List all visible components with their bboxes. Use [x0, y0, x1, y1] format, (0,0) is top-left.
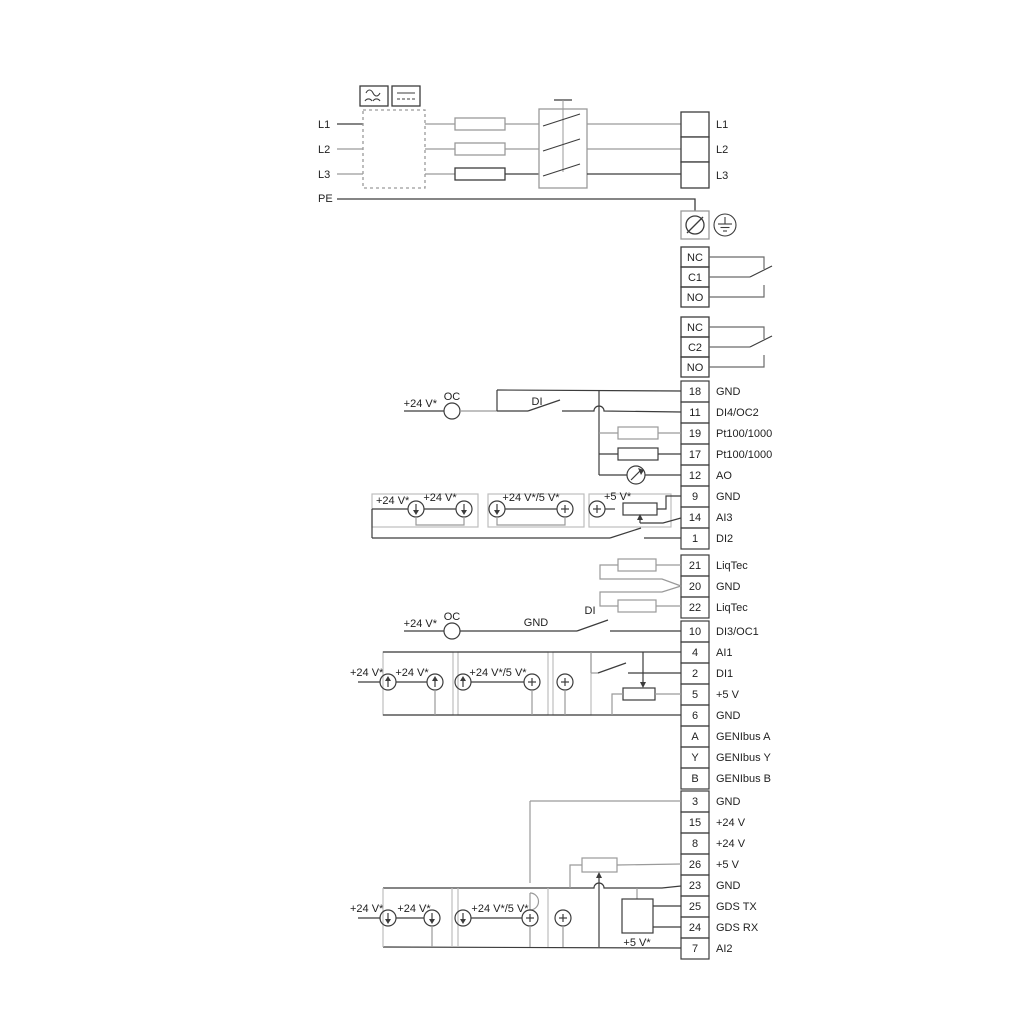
terminal-label: GENIbus B — [716, 773, 771, 785]
terminal-label: AI2 — [716, 943, 733, 955]
terminal-num: 5 — [692, 689, 698, 701]
mains-terminal-block — [681, 112, 709, 188]
label-plus5v: +5 V* — [604, 491, 632, 503]
terminal-num: 8 — [692, 838, 698, 850]
terminal-label: LiqTec — [716, 602, 748, 614]
terminal-label: GDS RX — [716, 922, 759, 934]
input-label-l2: L2 — [318, 144, 330, 156]
label-oc: OC — [444, 391, 461, 403]
input-label-l1: L1 — [318, 119, 330, 131]
terminal-num: 26 — [689, 859, 701, 871]
terminal-num: 17 — [689, 449, 701, 461]
terminal-label: DI1 — [716, 668, 733, 680]
relay1-c1: C1 — [688, 272, 702, 284]
output-label-l1: L1 — [716, 119, 728, 131]
terminal-num: 20 — [689, 581, 701, 593]
terminal-num: 12 — [689, 470, 701, 482]
input-label-l3: L3 — [318, 169, 330, 181]
terminal-label: GDS TX — [716, 901, 757, 913]
label-plus24v: +24 V* — [404, 398, 438, 410]
terminal-num: 3 — [692, 796, 698, 808]
terminal-num: 19 — [689, 428, 701, 440]
input-label-pe: PE — [318, 193, 333, 205]
label-plus24v: +24 V* — [350, 667, 384, 679]
terminal-label: GND — [716, 386, 741, 398]
terminal-label: AO — [716, 470, 732, 482]
relay2-no: NO — [687, 362, 704, 374]
label-oc: OC — [444, 611, 461, 623]
terminal-label: GENIbus A — [716, 731, 771, 743]
label-plus24v-5v: +24 V*/5 V* — [469, 667, 527, 679]
terminal-num: A — [691, 731, 699, 743]
terminal-label: +24 V — [716, 817, 746, 829]
relay1-nc: NC — [687, 252, 703, 264]
terminal-label: Pt100/1000 — [716, 449, 772, 461]
output-label-l2: L2 — [716, 144, 728, 156]
terminal-num: 24 — [689, 922, 701, 934]
terminal-label: DI3/OC1 — [716, 626, 759, 638]
terminal-num: 10 — [689, 626, 701, 638]
terminal-num: 9 — [692, 491, 698, 503]
output-label-l3: L3 — [716, 170, 728, 182]
relay2-nc: NC — [687, 322, 703, 334]
terminal-label: +5 V — [716, 689, 740, 701]
label-plus5v: +5 V* — [623, 937, 651, 949]
label-di: DI — [585, 605, 596, 617]
terminal-num: 18 — [689, 386, 701, 398]
terminal-num: 25 — [689, 901, 701, 913]
terminal-num: 6 — [692, 710, 698, 722]
label-plus24v-5v: +24 V*/5 V* — [502, 492, 560, 504]
terminal-num: 22 — [689, 602, 701, 614]
terminal-num: 7 — [692, 943, 698, 955]
terminal-num: 21 — [689, 560, 701, 572]
terminal-num: 4 — [692, 647, 698, 659]
label-plus24v-5v: +24 V*/5 V* — [471, 903, 529, 915]
terminal-label: LiqTec — [716, 560, 748, 572]
terminal-label: AI3 — [716, 512, 733, 524]
terminal-label: GND — [716, 710, 741, 722]
label-plus24v: +24 V* — [404, 618, 438, 630]
wiring-diagram-page: L1 L2 L3 PE — [0, 0, 1024, 1024]
terminal-num: Y — [691, 752, 699, 764]
terminal-label: GND — [716, 491, 741, 503]
background — [0, 0, 1024, 1024]
terminal-label: GND — [716, 796, 741, 808]
label-plus24v: +24 V* — [423, 492, 457, 504]
terminal-label: AI1 — [716, 647, 733, 659]
label-gnd: GND — [524, 617, 549, 629]
terminal-label: GENIbus Y — [716, 752, 771, 764]
terminal-label: +24 V — [716, 838, 746, 850]
terminal-num: 14 — [689, 512, 701, 524]
terminal-num: B — [691, 773, 698, 785]
terminal-num: 1 — [692, 533, 698, 545]
terminal-num: 11 — [689, 407, 700, 419]
wiring-diagram: L1 L2 L3 PE — [0, 0, 1024, 1024]
terminal-label: DI4/OC2 — [716, 407, 759, 419]
relay1-no: NO — [687, 292, 704, 304]
terminal-label: GND — [716, 880, 741, 892]
terminal-label: GND — [716, 581, 741, 593]
terminal-num: 23 — [689, 880, 701, 892]
terminal-num: 2 — [692, 668, 698, 680]
terminal-label: +5 V — [716, 859, 740, 871]
terminal-label: Pt100/1000 — [716, 428, 772, 440]
label-plus24v: +24 V* — [350, 903, 384, 915]
label-plus24v: +24 V* — [376, 495, 410, 507]
terminal-label: DI2 — [716, 533, 733, 545]
terminal-num: 15 — [689, 817, 701, 829]
relay2-c2: C2 — [688, 342, 702, 354]
label-plus24v: +24 V* — [395, 667, 429, 679]
